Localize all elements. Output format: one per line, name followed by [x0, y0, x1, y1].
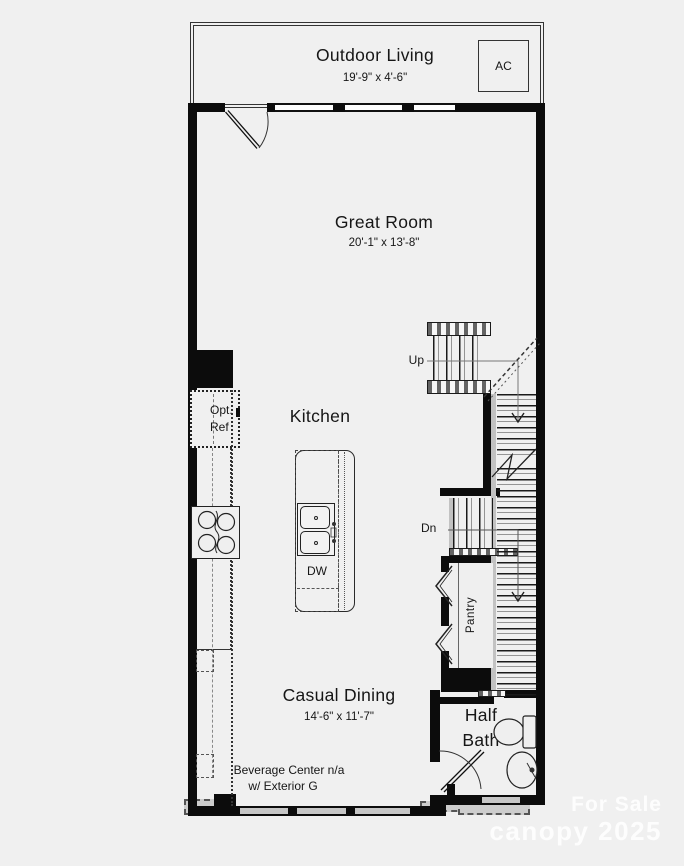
window-band-top	[275, 103, 455, 112]
window-mullion	[333, 103, 345, 112]
half-bath-label-1: Half	[441, 705, 521, 726]
wall-halfbath-top	[438, 697, 494, 704]
counter-notch-1	[196, 650, 214, 672]
casual-dining-label: Casual Dining	[239, 685, 439, 706]
kitchen-label: Kitchen	[270, 406, 370, 427]
wall-right	[536, 103, 545, 805]
stairs-right-treads-upper	[497, 394, 536, 456]
window-band-bottom-left	[240, 808, 410, 814]
wall-top-a	[188, 103, 225, 112]
window-mullion	[402, 103, 414, 112]
dw-dashed-line	[297, 588, 339, 589]
stair-landing-top	[427, 322, 491, 336]
up-label: Up	[398, 353, 424, 367]
ac-label: AC	[479, 59, 528, 73]
wall-corner-join	[430, 795, 446, 816]
great-room-door	[226, 111, 269, 149]
wall-pantry-left-2	[441, 597, 449, 626]
island-sink-unit	[297, 503, 335, 556]
wall-stair-mid	[483, 393, 491, 496]
stairs-up-treads	[433, 336, 485, 382]
opt-ref-line2: Ref	[210, 420, 229, 434]
wall-kitchen-chimney	[188, 350, 233, 388]
opt-ref-centerline	[213, 394, 214, 444]
outdoor-living-dims: 19'-9" x 4'-6"	[275, 72, 475, 84]
half-bath-door	[439, 750, 484, 792]
plan-linework	[0, 0, 684, 866]
island-dotted-line-2	[344, 452, 345, 610]
sink-drain	[314, 516, 318, 520]
wall-halfbath-door-stub	[447, 784, 455, 796]
watermark-canopy: canopy 2025	[420, 816, 662, 847]
stairs-dn-top-treads	[453, 498, 493, 550]
great-room-label: Great Room	[284, 212, 484, 233]
window-mullion	[346, 807, 355, 815]
pantry-label: Pantry	[465, 575, 477, 655]
floor-plan: Outdoor Living 19'-9" x 4'-6" AC	[0, 0, 684, 866]
outdoor-living-label: Outdoor Living	[275, 45, 475, 66]
sink-icon	[507, 752, 537, 788]
wall-top-b	[267, 103, 275, 112]
kitchen-counter-centerline	[212, 448, 213, 778]
island-dotted-line-1	[338, 452, 339, 610]
stairs-dn-run-treads	[497, 496, 536, 696]
stairs-right-treads-lower	[497, 468, 536, 494]
kitchen-dining-boundary-line	[231, 390, 233, 806]
half-bath-label-2: Bath	[441, 730, 521, 751]
wall-pantry-bottom	[441, 668, 493, 692]
stair-bottom-hatch	[478, 690, 506, 697]
stair-landing-mid	[427, 380, 491, 394]
opt-ref-handle	[236, 408, 240, 417]
wall-top-c	[455, 103, 545, 112]
window-mullion	[288, 807, 297, 815]
stair-break-line	[484, 338, 540, 401]
sink-bowl-2	[300, 531, 330, 554]
watermark-for-sale: For Sale	[480, 793, 662, 817]
beverage-note-line2: w/ Exterior G	[183, 779, 383, 793]
sink-drain	[314, 541, 318, 545]
dw-label: DW	[297, 564, 337, 578]
pantry-shelf-line	[458, 563, 459, 668]
dn-label: Dn	[421, 521, 436, 535]
ac-unit: AC	[478, 40, 529, 92]
cooktop	[191, 506, 240, 559]
wall-pantry-left-1	[441, 556, 449, 572]
beverage-note-line1: Beverage Center n/a	[189, 763, 389, 777]
casual-dining-dims: 14'-6" x 11'-7"	[239, 711, 439, 723]
opt-ref-line1: Opt.	[210, 403, 233, 417]
wall-pantry-top	[443, 556, 493, 563]
great-room-dims: 20'-1" x 13'-8"	[284, 237, 484, 249]
sink-bowl-1	[300, 506, 330, 529]
